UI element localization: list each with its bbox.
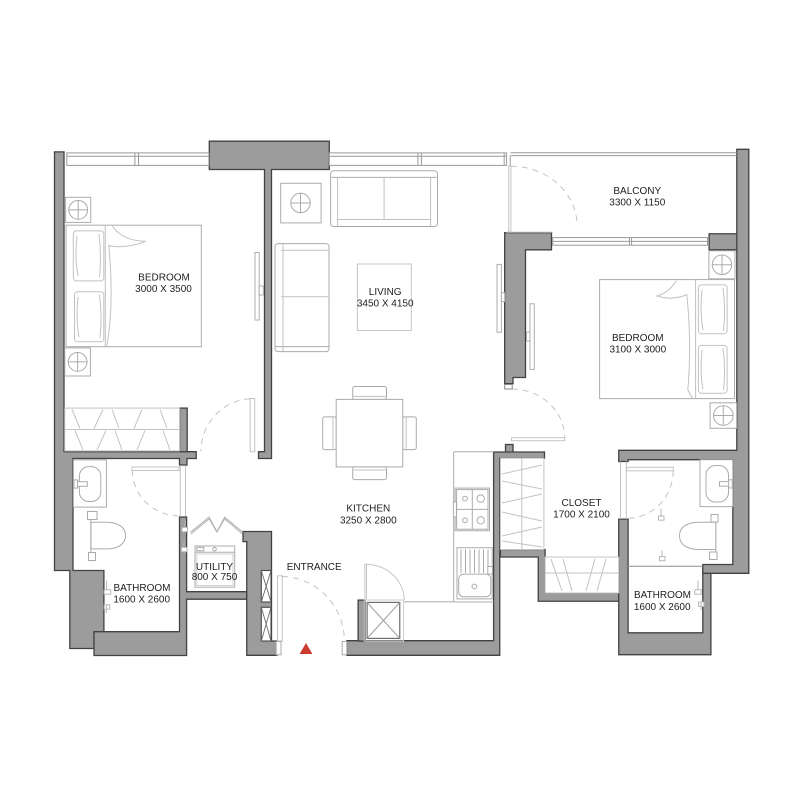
svg-text:BEDROOM: BEDROOM: [612, 333, 664, 344]
svg-text:3000 X 3500: 3000 X 3500: [135, 284, 192, 295]
svg-text:3250 X 2800: 3250 X 2800: [340, 516, 397, 527]
svg-text:1700 X 2100: 1700 X 2100: [553, 510, 610, 521]
svg-text:CLOSET: CLOSET: [561, 498, 601, 509]
svg-text:ENTRANCE: ENTRANCE: [287, 562, 342, 573]
svg-text:KITCHEN: KITCHEN: [346, 504, 390, 515]
svg-text:3300 X 1150: 3300 X 1150: [609, 197, 665, 208]
svg-text:1600 X 2600: 1600 X 2600: [634, 602, 691, 613]
svg-text:BATHROOM: BATHROOM: [634, 590, 691, 601]
svg-text:BALCONY: BALCONY: [613, 186, 661, 197]
svg-text:BEDROOM: BEDROOM: [138, 272, 190, 283]
svg-text:3100 X 3000: 3100 X 3000: [609, 345, 666, 356]
svg-text:LIVING: LIVING: [369, 287, 402, 298]
svg-text:1600 X 2600: 1600 X 2600: [113, 594, 170, 605]
svg-text:BATHROOM: BATHROOM: [113, 583, 170, 594]
svg-text:800 X 750: 800 X 750: [192, 572, 238, 583]
svg-text:3450 X 4150: 3450 X 4150: [357, 299, 414, 310]
